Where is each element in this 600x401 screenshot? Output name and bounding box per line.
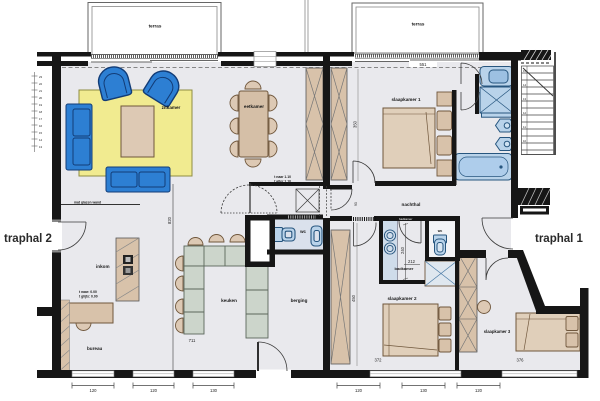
- svg-text:badkamer: badkamer: [395, 266, 414, 271]
- svg-text:wc: wc: [299, 229, 306, 234]
- svg-text:120: 120: [475, 388, 483, 393]
- svg-text:13: 13: [523, 97, 527, 101]
- svg-text:traphal 2: traphal 2: [4, 233, 52, 245]
- svg-text:slaapkamer 2: slaapkamer 2: [387, 296, 417, 301]
- svg-text:212: 212: [408, 259, 416, 264]
- svg-text:slaapkamer 3: slaapkamer 3: [484, 329, 511, 334]
- svg-text:22: 22: [39, 82, 43, 86]
- svg-text:t alter 1.10: t alter 1.10: [274, 180, 291, 184]
- svg-text:14: 14: [39, 138, 43, 142]
- svg-text:18: 18: [39, 110, 43, 114]
- svg-text:10: 10: [523, 139, 527, 143]
- svg-text:23: 23: [39, 75, 43, 79]
- svg-text:t naar 1.10: t naar 1.10: [274, 175, 291, 179]
- svg-text:820: 820: [167, 216, 172, 224]
- svg-text:t naar: 0.00: t naar: 0.00: [79, 290, 97, 294]
- svg-text:130: 130: [210, 388, 218, 393]
- svg-text:zitkamer: zitkamer: [162, 105, 181, 110]
- svg-text:372: 372: [375, 358, 383, 363]
- svg-text:93: 93: [354, 202, 358, 206]
- svg-text:450: 450: [351, 294, 356, 302]
- svg-text:14: 14: [523, 83, 527, 87]
- svg-text:21: 21: [39, 89, 43, 93]
- svg-text:711: 711: [189, 338, 196, 343]
- svg-text:15: 15: [523, 69, 527, 73]
- svg-text:240: 240: [400, 246, 405, 254]
- svg-text:t glijts: 0.00: t glijts: 0.00: [79, 295, 98, 299]
- svg-text:bureau: bureau: [87, 346, 103, 351]
- svg-text:376: 376: [517, 358, 525, 363]
- svg-text:slaapkamer 1: slaapkamer 1: [391, 97, 421, 102]
- svg-text:inkom: inkom: [96, 264, 110, 269]
- svg-text:120: 120: [150, 388, 158, 393]
- svg-text:120: 120: [90, 388, 98, 393]
- svg-text:terras: terras: [149, 24, 162, 29]
- svg-text:130: 130: [420, 388, 428, 393]
- svg-text:19: 19: [39, 103, 43, 107]
- svg-text:12: 12: [523, 111, 527, 115]
- svg-text:551: 551: [420, 62, 428, 67]
- svg-text:badkamer: badkamer: [399, 217, 412, 221]
- svg-text:mat glazen wand: mat glazen wand: [74, 201, 101, 205]
- svg-text:eetkamer: eetkamer: [244, 104, 264, 109]
- svg-text:350: 350: [353, 120, 358, 128]
- svg-text:16: 16: [39, 124, 43, 128]
- svg-text:20: 20: [39, 96, 43, 100]
- svg-text:wc: wc: [437, 229, 443, 233]
- svg-text:traphal 1: traphal 1: [535, 233, 584, 245]
- svg-text:nachthal: nachthal: [402, 202, 421, 207]
- svg-text:17: 17: [39, 117, 43, 121]
- svg-text:keuken: keuken: [221, 298, 237, 303]
- svg-text:11: 11: [523, 125, 526, 129]
- svg-text:120: 120: [355, 388, 363, 393]
- svg-text:terras: terras: [412, 22, 425, 27]
- svg-text:berging: berging: [291, 298, 308, 303]
- svg-text:13: 13: [39, 145, 43, 149]
- svg-text:15: 15: [39, 131, 43, 135]
